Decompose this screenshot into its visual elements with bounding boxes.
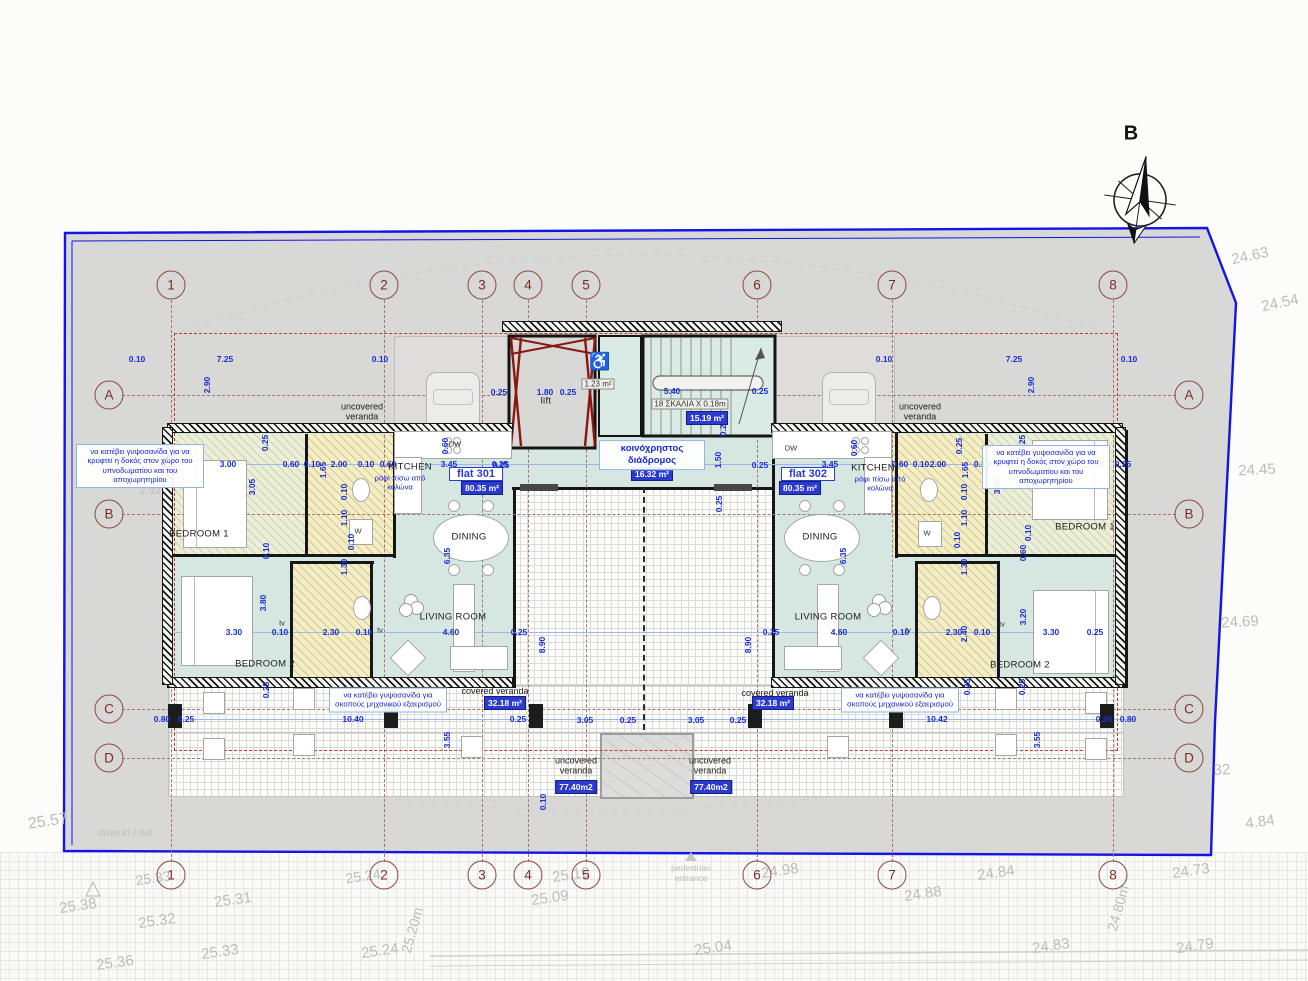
room-label: lift [541,396,552,407]
chair [448,564,460,576]
grid-bubble-bottom-7: 7 [878,861,907,890]
dimension-label: 0.80 [1120,714,1137,724]
appliance-label: tv [377,626,383,635]
dimension-label: 3.80 [258,595,268,612]
grid-bubble-right-B: B [1175,500,1204,529]
dimension-label: 0.25 [1096,714,1113,724]
dimension-label: 0.10 [876,354,893,364]
dimension-label: 0.25 [962,679,972,696]
dimension-label: 0.10 [538,794,548,811]
door-threshold [714,484,752,491]
dimension-label: 1.30 [339,559,349,576]
grid-bubble-top-1: 1 [157,271,186,300]
plant [867,603,881,617]
dimension-label: 0.10 [959,484,969,501]
dimension-label: 1.10 [959,510,969,527]
hob-burner [861,437,869,445]
veranda-seat [293,688,315,710]
grid-bubble-bottom-4: 4 [514,861,543,890]
dimension-label: 0.25 [763,627,780,637]
area-badge: 15.19 m² [686,411,728,425]
dimension-label: 0.60 [1018,545,1028,562]
partition-wall [915,561,1000,564]
dimension-label: 4.60 [443,627,460,637]
grid-bubble-top-5: 5 [572,271,601,300]
appliance-label: W [923,529,930,538]
area-badge: 32.18 m² [752,696,794,710]
dimension-label: 0.25 [260,435,270,452]
info-box: 18 ΣΚΑΛΙΑ X 0.18m [651,399,728,410]
dimension-label: 0.10 [356,627,373,637]
room-label: LIVING ROOM [795,612,862,623]
grid-bubble-left-A: A [95,381,124,410]
dimension-label: 7.25 [217,354,234,364]
exterior-wall [503,322,781,331]
appliance-label: W [354,527,361,536]
area-badge: 77.40m2 [690,780,732,794]
room-label: KITCHEN [851,463,895,474]
grid-bubble-bottom-1: 1 [157,861,186,890]
dimension-label: 0.25 [510,714,527,724]
partition-wall [290,561,374,564]
plant [399,603,413,617]
veranda-label: covered veranda [461,686,528,696]
dimension-label: 1.65 [960,462,970,479]
appliance-label: DW [785,444,798,453]
dimension-label: 4.60 [831,627,848,637]
dimension-label: 2.00 [930,459,947,469]
veranda-label: uncovered veranda [681,756,739,777]
partition-wall [172,554,395,557]
hob-burner [861,446,869,454]
dimension-label: 3.55 [442,732,452,749]
dimension-line [160,719,1135,720]
toilet [353,596,371,620]
toilet [920,478,938,502]
partition-wall [305,434,308,556]
chair [833,500,845,512]
dimension-label: 3.05 [577,715,594,725]
veranda-seat [995,734,1017,756]
dimension-label: 0.25 [1017,679,1027,696]
dimension-label: 0.25 [178,714,195,724]
grid-bubble-bottom-5: 5 [572,861,601,890]
veranda-seat [827,736,849,758]
grid-bubble-left-D: D [95,744,124,773]
chair [799,500,811,512]
dimension-label: 2.00 [331,459,348,469]
dimension-label: 3.30 [1043,627,1060,637]
room-label: BEDROOM 2 [990,660,1050,671]
room-label: BEDROOM 2 [235,659,295,670]
site-level-label: 24.45 [1238,461,1276,480]
dimension-label: 7.25 [1006,354,1023,364]
dimension-label: 3.55 [1032,732,1042,749]
note-annotation: να κατέβει γυψοσανίδα για να κρυφτεί η δ… [982,445,1110,489]
grid-bubble-left-B: B [95,500,124,529]
dimension-label: 0.10 [346,534,356,551]
partition-wall [895,432,898,558]
dimension-label: 0.10 [913,459,930,469]
dimension-label: 2.30 [323,627,340,637]
info-box: 1.23 m² [581,379,614,390]
dimension-label: 0.10 [974,627,991,637]
dimension-label: 0.25 [954,438,964,455]
dimension-label: 8.90 [537,637,547,654]
dimension-label: 3.30 [226,627,243,637]
appliance-label: tv [905,626,911,635]
dimension-label: 0.25 [261,682,271,699]
dimension-label: 0.10 [372,354,389,364]
dimension-label: 0.80 [154,714,171,724]
grid-bubble-right-A: A [1175,381,1204,410]
dimension-label: 0.25 [1087,627,1104,637]
grid-bubble-bottom-8: 8 [1099,861,1128,890]
door-threshold [520,484,558,491]
partition-wall [370,561,373,678]
dimension-label: 2.40 [959,626,969,643]
dimension-label: 0.60 [849,440,859,457]
flat-name-chip: flat 301 [449,467,503,481]
column [529,704,543,728]
wheelchair-icon: ♿ [589,352,610,372]
dimension-label: 10.42 [926,714,947,724]
note-annotation: να κατέβει γυψοσανίδα για σκοπούς μηχανι… [329,688,447,713]
dimension-label: 3.20 [1018,609,1028,626]
north-label: B [1124,123,1138,146]
dimension-label: 0.25 [752,386,769,396]
veranda-seat [203,692,225,714]
pedestrian-arrow-icon [685,852,697,861]
dimension-label: 0.25 [491,387,508,397]
dimension-label: 0.10 [339,484,349,501]
dimension-label: 6.35 [442,548,452,565]
grid-bubble-top-8: 8 [1099,271,1128,300]
appliance-label: tv [999,620,1005,629]
veranda-label: uncovered veranda [891,402,949,423]
partition-wall [895,554,1118,557]
grid-bubble-top-3: 3 [468,271,497,300]
dimension-label: 10.40 [342,714,363,724]
dimension-label: 0.10 [272,627,289,637]
dimension-label: 3.05 [688,715,705,725]
dimension-label: 6.35 [838,548,848,565]
grid-bubble-bottom-6: 6 [743,861,772,890]
veranda-seat [995,688,1017,710]
expansion-joint [643,487,645,730]
area-badge: 77.40m2 [555,780,597,794]
partition-wall [915,561,918,678]
dimension-label: 0.10 [261,543,271,560]
room-label: DINING [802,532,837,543]
grid-bubble-right-D: D [1175,744,1204,773]
dimension-label: 0.10 [358,459,375,469]
veranda-label: uncovered veranda [333,402,391,423]
grid-bubble-top-2: 2 [370,271,399,300]
veranda-seat [293,734,315,756]
sofa [450,646,508,670]
area-badge: 80.35 m² [779,481,821,495]
chair [448,500,460,512]
dimension-label: 0.25 [714,496,724,513]
dimension-label: 1.65 [318,462,328,479]
grid-bubble-top-6: 6 [743,271,772,300]
chair [833,564,845,576]
note-annotation: κοινόχρηστος διάδρομος [599,440,705,470]
dimension-label: 3.05 [247,479,257,496]
site-level-label: 24.69 [1221,613,1259,632]
dimension-label: 0.10 [1023,525,1033,542]
note-annotation: να κατέβει γυψοσανίδα για να κρυφτεί η δ… [76,444,204,488]
drive-in-out-label: drive in / out [98,828,152,839]
dimension-label: 0.25 [620,715,637,725]
note-annotation: να κατέβει γυψοσανίδα για σκοπούς μηχανι… [841,688,959,713]
grid-bubble-bottom-2: 2 [370,861,399,890]
grid-axis-line-D [122,758,1176,759]
floor-plan-canvas: B [0,0,1308,981]
dimension-label: 1.30 [959,559,969,576]
dimension-label: 5.40 [664,386,681,396]
room-label: KITCHEN [388,462,432,473]
dimension-label: 0.25 [730,715,747,725]
veranda-label: uncovered veranda [547,756,605,777]
veranda-seat [1085,738,1107,760]
sofa [784,646,842,670]
area-badge: 80.35 m² [461,481,503,495]
grid-bubble-right-C: C [1175,695,1204,724]
toilet [923,596,941,620]
dimension-label: 8.90 [743,637,753,654]
grid-bubble-top-4: 4 [514,271,543,300]
flat-name-chip: flat 302 [781,467,835,481]
dimension-label: 0.10 [1121,354,1138,364]
area-badge: 32.18 m² [484,696,526,710]
site-level-label: 32 [1213,761,1231,779]
dimension-label: 1.10 [339,510,349,527]
grid-bubble-top-7: 7 [878,271,907,300]
dimension-label: 3.00 [220,459,237,469]
note-annotation: ράφι πίσω από κολώνα [368,474,432,493]
dimension-label: 0.10 [129,354,146,364]
dimension-label: 0.25 [560,387,577,397]
chair [482,500,494,512]
veranda-seat [461,736,483,758]
exterior-wall [772,678,1122,687]
appliance-label: tv [279,619,285,628]
room-label: BEDROOM 1 [1055,522,1115,533]
dimension-label: 0.25 [1115,459,1132,469]
dimension-label: 2.90 [202,377,212,394]
bed [181,576,253,666]
note-annotation: ράφι πίσω από κολώνα [848,475,912,494]
room-label: LIVING ROOM [420,612,487,623]
dimension-label: 0.10 [952,532,962,549]
north-arrow-icon [1094,146,1190,246]
dimension-label: 0.25 [511,627,528,637]
room-label: DINING [451,532,486,543]
chair [799,564,811,576]
dimension-label: 1.50 [713,452,723,469]
dimension-label: 0.25 [752,460,769,470]
appliance-label: DW [449,440,462,449]
dimension-label: 2.90 [1026,377,1036,394]
chair [482,564,494,576]
grid-bubble-bottom-3: 3 [468,861,497,890]
exterior-wall [168,678,512,687]
dimension-label: 0.60 [283,459,300,469]
grid-bubble-left-C: C [95,695,124,724]
pedestrian-entrance-label: pedestrian entrance [656,863,726,883]
room-label: BEDROOM 1 [169,529,229,540]
veranda-seat [203,738,225,760]
